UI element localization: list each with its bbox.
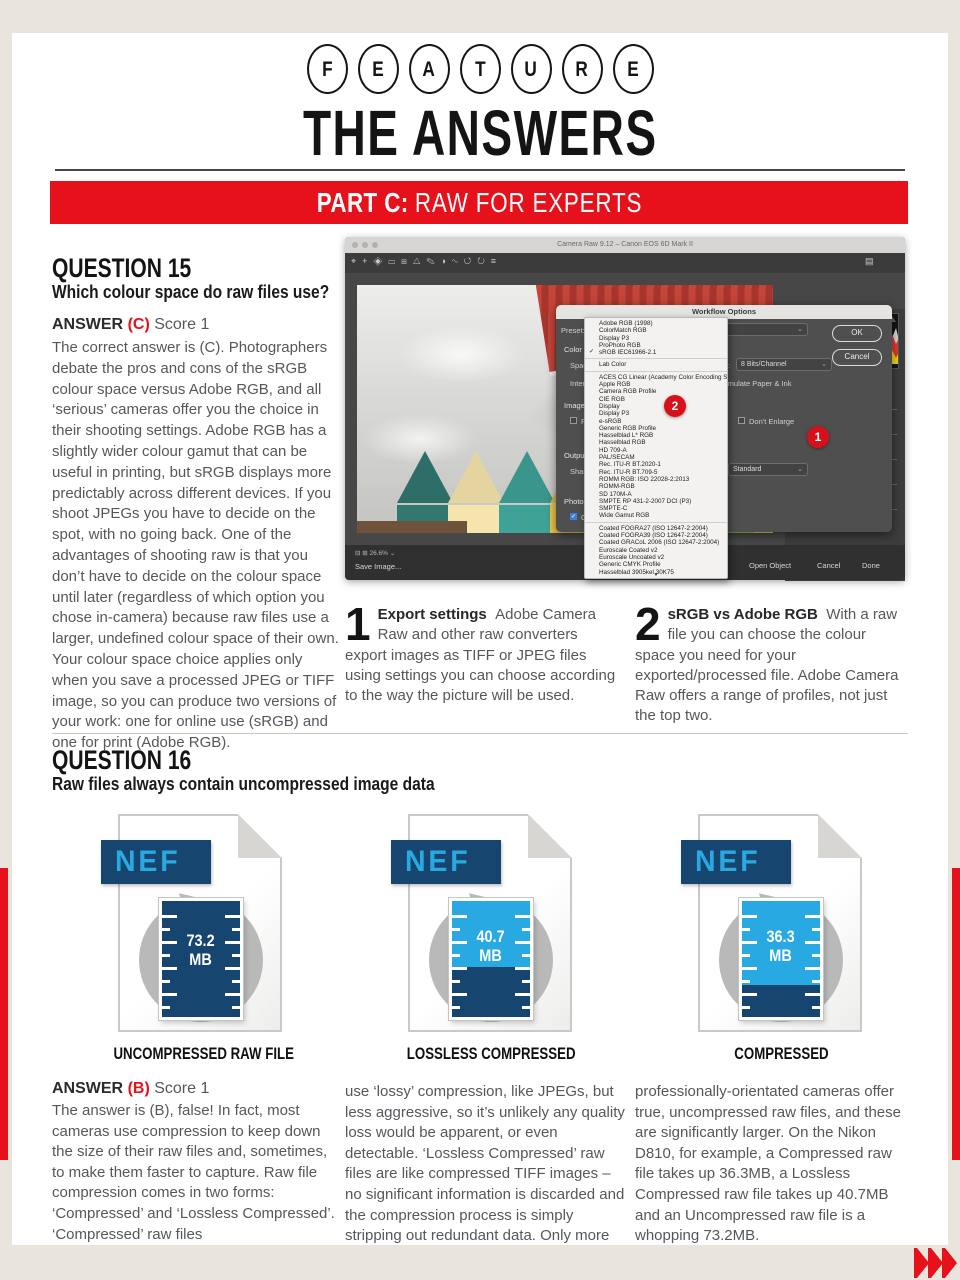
menu-item[interactable]: e-sRGB xyxy=(585,418,727,425)
menu-item[interactable]: Display P3 xyxy=(585,410,727,417)
done-button[interactable]: Done xyxy=(862,561,880,570)
menu-item[interactable]: Coated FOGRA39 (ISO 12647-2:2004) xyxy=(585,532,727,539)
menu-item[interactable]: HD 709-A xyxy=(585,447,727,454)
caption-2: 2sRGB vs Adobe RGB With a raw file you c… xyxy=(635,605,907,727)
menu-item[interactable]: Coated GRACoL 2006 (ISO 12647-2:2004) xyxy=(585,539,727,546)
cancel-button[interactable]: Cancel xyxy=(817,561,840,570)
menu-item[interactable]: ColorMatch RGB xyxy=(585,327,727,334)
menu-item[interactable]: Euroscale Coated v2 xyxy=(585,547,727,554)
header-rule xyxy=(55,169,905,171)
menu-item[interactable]: Hasselblad RGB xyxy=(585,439,727,446)
feature-letter: E xyxy=(613,44,654,94)
dialog-cancel-button[interactable]: Cancel xyxy=(832,349,882,366)
open-object-button[interactable]: Open Object xyxy=(749,561,791,570)
menu-item[interactable]: ROMM-RGB xyxy=(585,483,727,490)
menu-item[interactable]: SD 170M-A xyxy=(585,491,727,498)
menu-item[interactable]: Rec. ITU-R BT.2020-1 xyxy=(585,461,727,468)
feature-letter: R xyxy=(562,44,603,94)
resize-checkbox[interactable] xyxy=(570,417,577,424)
file-size-label: 40.7MB xyxy=(452,927,530,965)
menu-item[interactable]: Generic CMYK Profile xyxy=(585,561,727,568)
menu-item[interactable]: SMPTE RP 431-2-2007 DCI (P3) xyxy=(585,498,727,505)
question-15-body: The correct answer is (C). Photographers… xyxy=(52,338,340,754)
file-caption: UNCOMPRESSED RAW FILE xyxy=(88,1044,314,1064)
feature-letter: A xyxy=(409,44,450,94)
file-icon-lossless: 40.7MB NEF LOSSLESS COMPRESSED xyxy=(378,812,604,1068)
file-caption: COMPRESSED xyxy=(668,1044,894,1064)
menu-scroll-arrow[interactable]: ▼ xyxy=(585,572,727,578)
question-15-heading: QUESTION 15 xyxy=(52,253,231,284)
right-edge-strip xyxy=(952,868,960,1160)
simulate-label: Simulate Paper & Ink xyxy=(721,379,791,388)
menu-item[interactable]: Euroscale Uncoated v2 xyxy=(585,554,727,561)
feature-letter: T xyxy=(460,44,501,94)
fast-forward-arrows-icon xyxy=(914,1247,958,1279)
answer-paragraph-2: use ‘lossy’ compression, like JPEGs, but… xyxy=(345,1082,627,1247)
question-16-answer-column: ANSWER (B) Score 1 The answer is (B), fa… xyxy=(52,1080,340,1245)
menu-item[interactable]: PAL/SECAM xyxy=(585,454,727,461)
page-fold-icon xyxy=(238,814,282,858)
answer-paragraph-3: professionally-orientated cameras offer … xyxy=(635,1082,913,1247)
ok-button[interactable]: OK xyxy=(832,325,882,342)
menu-item[interactable]: Adobe RGB (1998) xyxy=(585,320,727,327)
menu-item[interactable]: CIE RGB xyxy=(585,396,727,403)
window-titlebar: Camera Raw 9.12 – Canon EOS 6D Mark II xyxy=(345,237,905,253)
dont-enlarge-checkbox[interactable] xyxy=(738,417,745,424)
menu-item[interactable]: Display P3 xyxy=(585,335,727,342)
page-title: THE ANSWERS xyxy=(0,96,960,170)
question-15-answer-line: ANSWER (C) Score 1 xyxy=(52,316,209,334)
menu-item[interactable]: Generic RGB Profile xyxy=(585,425,727,432)
section-divider xyxy=(52,733,908,734)
color-space-menu: Adobe RGB (1998)ColorMatch RGBDisplay P3… xyxy=(584,317,728,579)
caption-1: 1Export settings Adobe Camera Raw and ot… xyxy=(345,605,617,706)
feature-letter: E xyxy=(358,44,399,94)
nef-format-badge: NEF xyxy=(391,840,501,884)
menu-item[interactable]: Camera RGB Profile xyxy=(585,388,727,395)
menu-item[interactable]: Wide Gamut RGB xyxy=(585,512,727,519)
menu-item[interactable]: ProPhoto RGB xyxy=(585,342,727,349)
page-fold-icon xyxy=(818,814,862,858)
window-title: Camera Raw 9.12 – Canon EOS 6D Mark II xyxy=(345,237,905,253)
depth-dropdown[interactable]: 8 Bits/Channel⌄ xyxy=(736,358,832,371)
question-16-heading: QUESTION 16 xyxy=(52,745,231,776)
feature-letter: F xyxy=(307,44,348,94)
page-fold-icon xyxy=(528,814,572,858)
feature-letter: U xyxy=(511,44,552,94)
menu-item[interactable]: ACES CG Linear (Academy Color Encoding S… xyxy=(585,374,727,381)
menu-item[interactable]: ROMM RGB: ISO 22028-2:2013 xyxy=(585,476,727,483)
amount-dropdown[interactable]: Standard⌄ xyxy=(728,463,808,476)
part-banner: PART C: RAW FOR EXPERTS xyxy=(50,181,908,224)
file-size-bar: 73.2MB xyxy=(159,898,243,1020)
file-size-bar: 36.3MB xyxy=(739,898,823,1020)
file-size-bar: 40.7MB xyxy=(449,898,533,1020)
menu-item[interactable]: Lab Color xyxy=(585,361,727,368)
save-image-button[interactable]: Save Image... xyxy=(355,562,401,571)
menu-item[interactable]: Rec. ITU-R BT.709-5 xyxy=(585,469,727,476)
magazine-page: FEATURE THE ANSWERS PART C: RAW FOR EXPE… xyxy=(0,0,960,1280)
callout-marker-1: 1 xyxy=(807,426,829,448)
menu-item[interactable]: Coated FOGRA27 (ISO 12647-2:2004) xyxy=(585,525,727,532)
toolbar-icons[interactable]: ⌖+◈▭⊞△✎◑∿↺↻≡ xyxy=(351,256,502,267)
menu-item[interactable]: sRGB IEC61966-2.1✓ xyxy=(585,349,727,356)
feature-lettering: FEATURE xyxy=(0,44,960,94)
question-16-subheading: Raw files always contain uncompressed im… xyxy=(52,773,507,795)
acr-toolbar: ⌖+◈▭⊞△✎◑∿↺↻≡ ▤ xyxy=(345,253,905,273)
dont-enlarge-label: Don't Enlarge xyxy=(749,417,794,426)
file-size-label: 36.3MB xyxy=(742,927,820,965)
banner-rest-label: RAW FOR EXPERTS xyxy=(414,187,641,218)
file-caption: LOSSLESS COMPRESSED xyxy=(378,1044,604,1064)
menu-item[interactable]: Display xyxy=(585,403,727,410)
file-icon-uncompressed: 73.2MB NEF UNCOMPRESSED RAW FILE xyxy=(88,812,314,1068)
panel-toggle-icon[interactable]: ▤ xyxy=(865,256,874,267)
preset-label: Preset: xyxy=(561,326,585,335)
smart-objects-checkbox[interactable]: ✓ xyxy=(570,513,577,520)
callout-marker-2: 2 xyxy=(664,395,686,417)
answer-paragraph-1: The answer is (B), false! In fact, most … xyxy=(52,1101,340,1245)
left-edge-strip xyxy=(0,868,8,1160)
menu-item[interactable]: SMPTE-C xyxy=(585,505,727,512)
beach-hut xyxy=(499,451,555,533)
file-icon-compressed: 36.3MB NEF COMPRESSED xyxy=(668,812,894,1068)
question-15-subheading: Which colour space do raw files use? xyxy=(52,281,382,303)
menu-item[interactable]: Apple RGB xyxy=(585,381,727,388)
nef-format-badge: NEF xyxy=(681,840,791,884)
sand-strip xyxy=(357,521,467,533)
file-size-label: 73.2MB xyxy=(162,931,240,969)
acr-screenshot: Camera Raw 9.12 – Canon EOS 6D Mark II ⌖… xyxy=(345,237,905,580)
menu-item[interactable]: Hasselblad L* RGB xyxy=(585,432,727,439)
nef-format-badge: NEF xyxy=(101,840,211,884)
banner-part-label: PART C: xyxy=(316,187,408,218)
